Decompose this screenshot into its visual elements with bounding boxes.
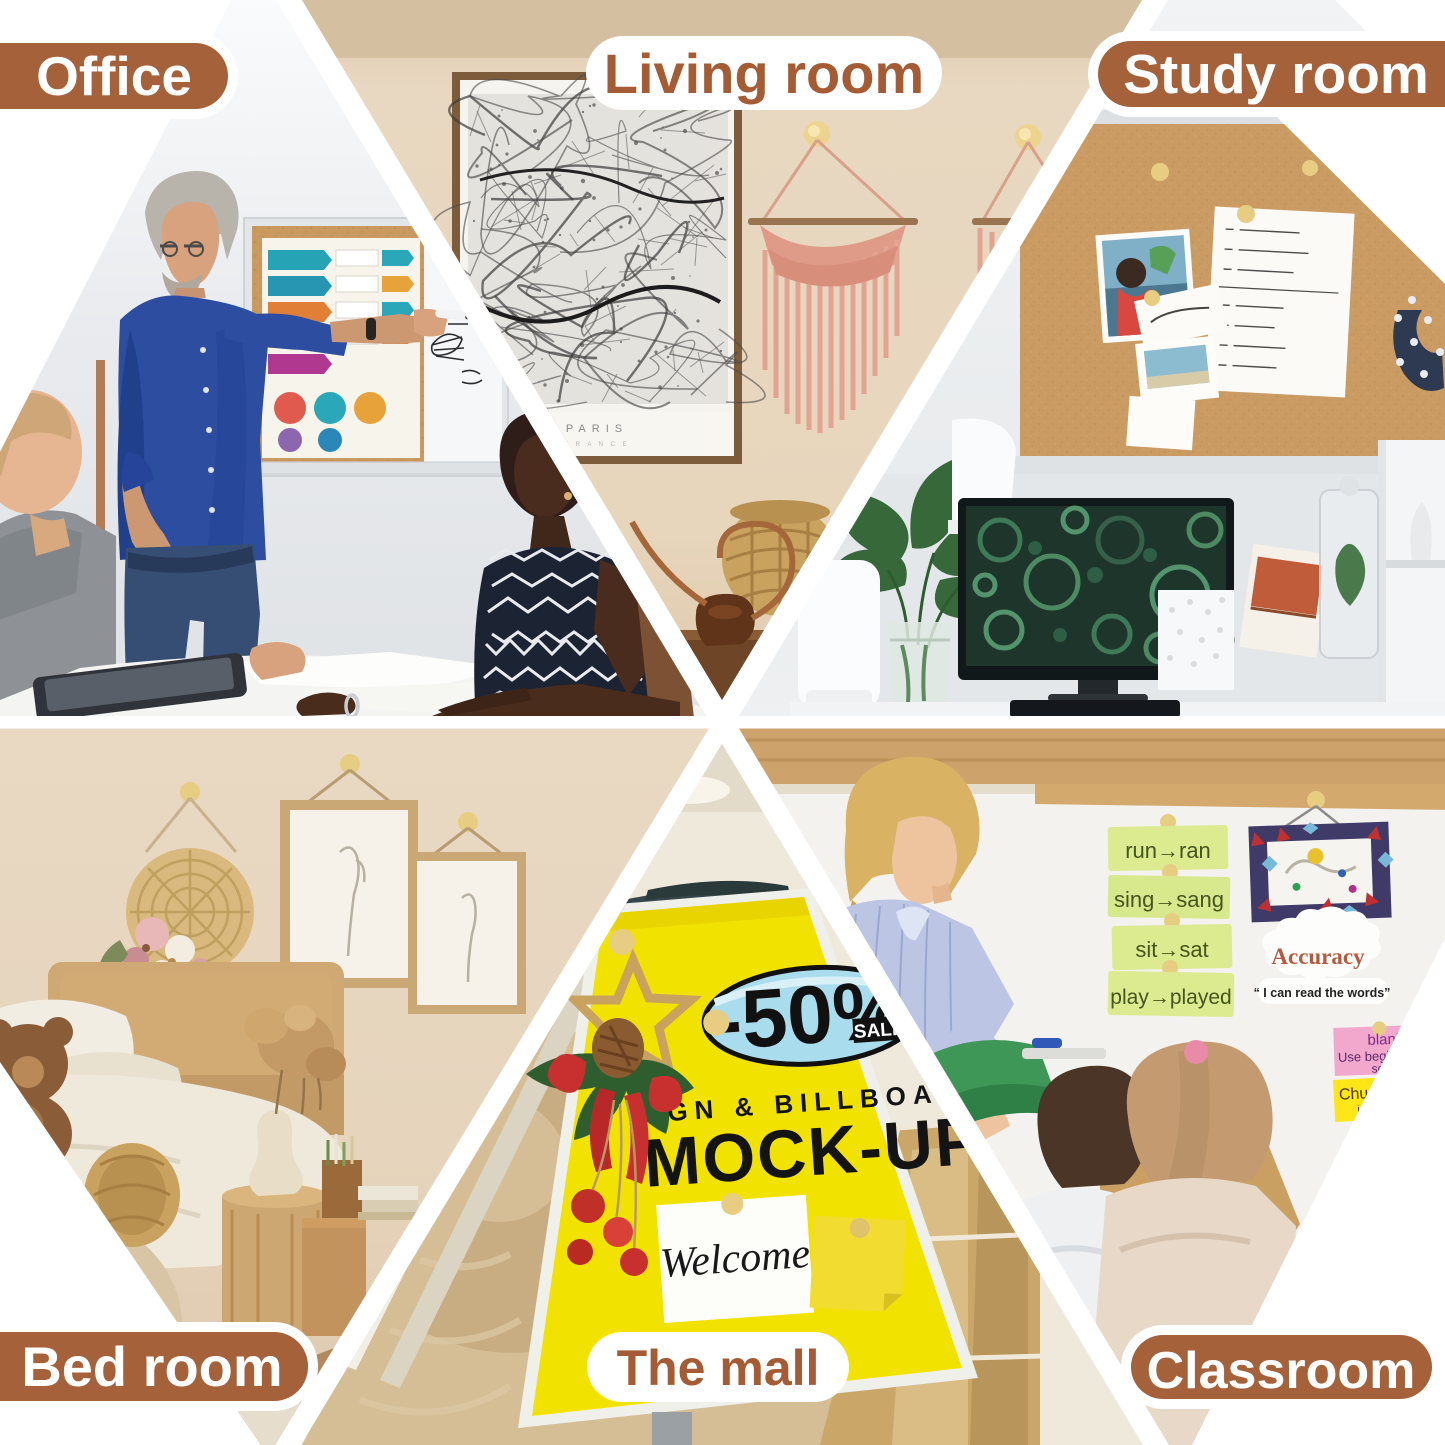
svg-text:run→ran: run→ran bbox=[1125, 838, 1211, 863]
svg-text:F R A N C E: F R A N C E bbox=[564, 442, 629, 448]
svg-text:sing→sang: sing→sang bbox=[1114, 887, 1224, 912]
svg-text:PARIS: PARIS bbox=[566, 423, 628, 435]
svg-text:Living room: Living room bbox=[604, 42, 924, 105]
svg-text:play→played: play→played bbox=[1110, 986, 1231, 1009]
svg-text:The mall: The mall bbox=[617, 1340, 820, 1396]
svg-text:Bed room: Bed room bbox=[21, 1335, 282, 1398]
svg-text:“ I can read the words”: “ I can read the words” bbox=[1254, 986, 1391, 1000]
svg-text:Accuracy: Accuracy bbox=[1271, 944, 1365, 969]
svg-text:sit→sat: sit→sat bbox=[1135, 937, 1208, 962]
svg-text:Office: Office bbox=[36, 45, 192, 107]
svg-text:Classroom: Classroom bbox=[1147, 1342, 1416, 1400]
svg-text:Study room: Study room bbox=[1123, 43, 1429, 105]
